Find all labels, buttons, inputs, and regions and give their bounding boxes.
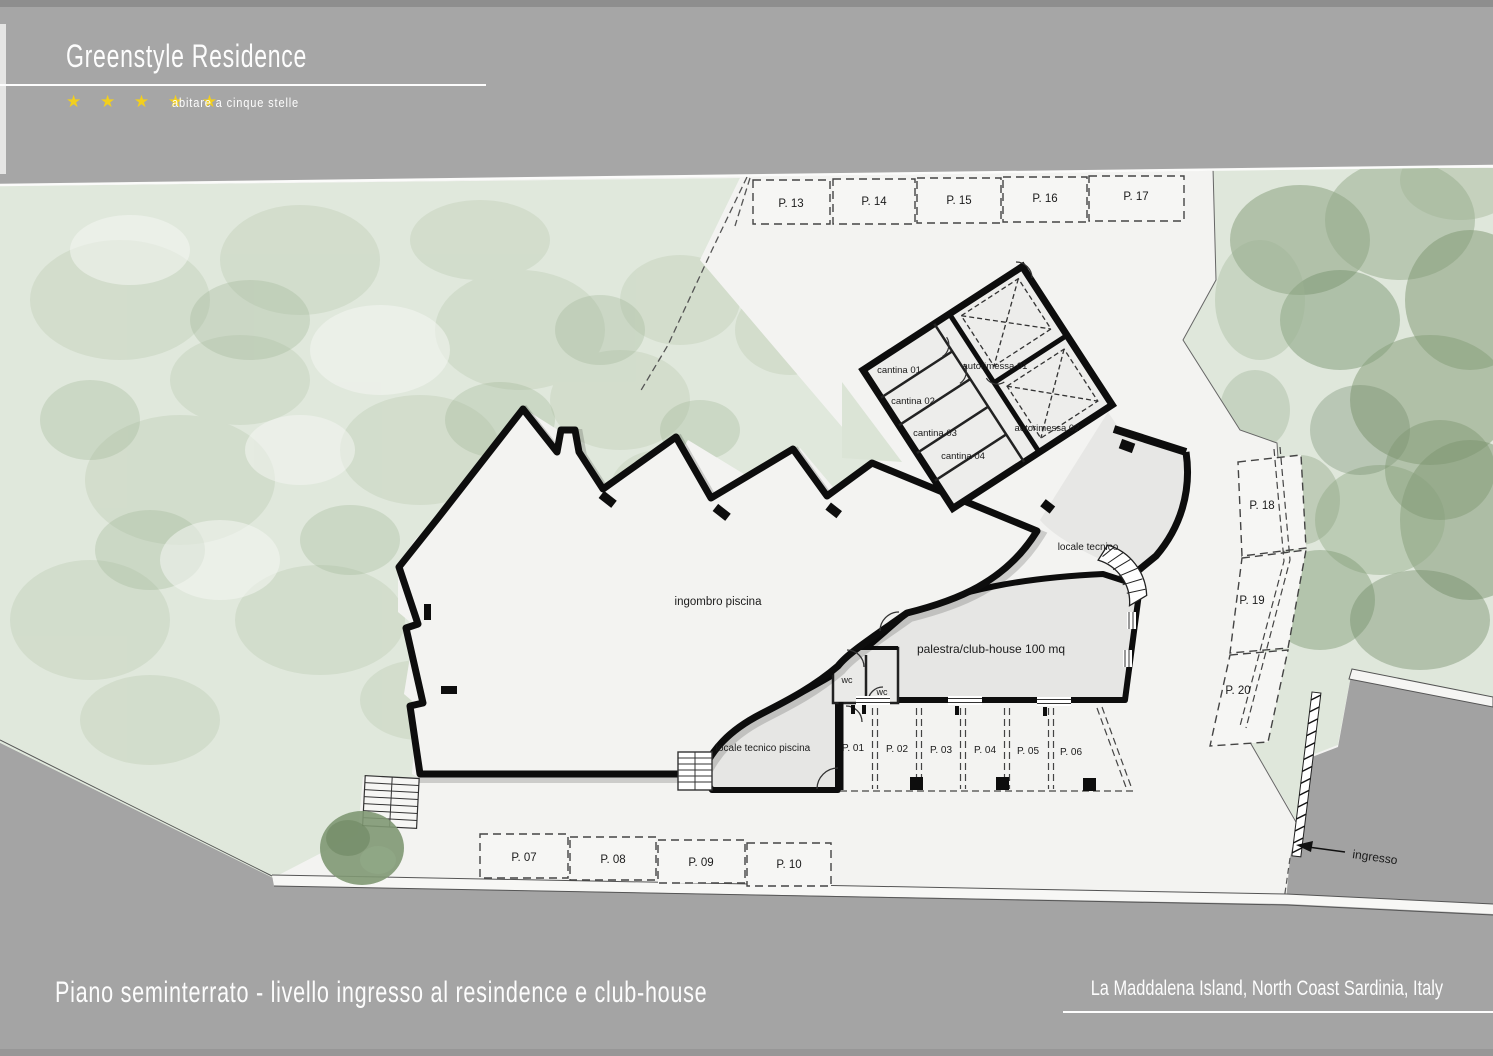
parking-label: P. 13 [778, 198, 803, 210]
header-top-strip [0, 0, 1493, 7]
site-plan: P. 13 P. 14 P. 15 P. 16 P. 17 P. 07 P. 0… [0, 0, 1493, 1056]
parking-label: P. 05 [1017, 746, 1039, 757]
presentation-page: P. 13 P. 14 P. 15 P. 16 P. 17 P. 07 P. 0… [0, 0, 1493, 1056]
parking-label: P. 07 [511, 852, 536, 864]
footer-underline [1063, 1011, 1493, 1013]
page-left-sliver [0, 24, 6, 174]
room-label-tech: locale tecnico [1058, 542, 1119, 553]
room-label-cantina: cantina 02 [891, 396, 935, 407]
parking-label: P. 17 [1123, 191, 1148, 203]
room-label-gym: palestra/club-house 100 mq [917, 642, 1065, 656]
room-label-garage: autorimessa 01 [963, 361, 1028, 372]
parking-label: P. 06 [1060, 747, 1082, 758]
parking-label: P. 04 [974, 745, 996, 756]
room-label-pool: ingombro piscina [675, 596, 763, 608]
parking-label: P. 10 [776, 859, 801, 871]
parking-label: P. 16 [1032, 193, 1057, 205]
parking-label: P. 08 [600, 854, 625, 866]
page-title: Greenstyle Residence [66, 38, 401, 75]
parking-label: P. 09 [688, 857, 713, 869]
room-label-cantina: cantina 01 [877, 365, 921, 376]
footer-bottom-strip [0, 1049, 1493, 1056]
room-label-wc: wc [841, 675, 853, 685]
room-label-cantina: cantina 03 [913, 428, 957, 439]
staircase-pool [678, 752, 712, 790]
parking-label: P. 18 [1249, 500, 1274, 512]
location-label: La Maddalena Island, North Coast Sardini… [1040, 977, 1493, 1001]
parking-label: P. 02 [886, 744, 908, 755]
parking-label: P. 03 [930, 745, 952, 756]
parking-label: P. 14 [861, 196, 887, 208]
room-label-pool-tech: locale tecnico piscina [716, 743, 811, 754]
parking-label: P. 15 [946, 195, 971, 207]
parking-label: P. 20 [1225, 685, 1250, 697]
parking-label: P. 19 [1239, 595, 1264, 607]
tree-southwest [320, 811, 404, 885]
room-label-wc: wc [876, 687, 888, 697]
header-tagline: abitare a cinque stelle [172, 95, 321, 110]
parking-label: P. 01 [842, 743, 864, 754]
room-label-garage: autorimessa 02 [1015, 423, 1080, 434]
plan-title: Piano seminterrato - livello ingresso al… [55, 976, 961, 1010]
room-label-cantina: cantina 04 [941, 451, 985, 462]
header-underline [0, 84, 486, 86]
